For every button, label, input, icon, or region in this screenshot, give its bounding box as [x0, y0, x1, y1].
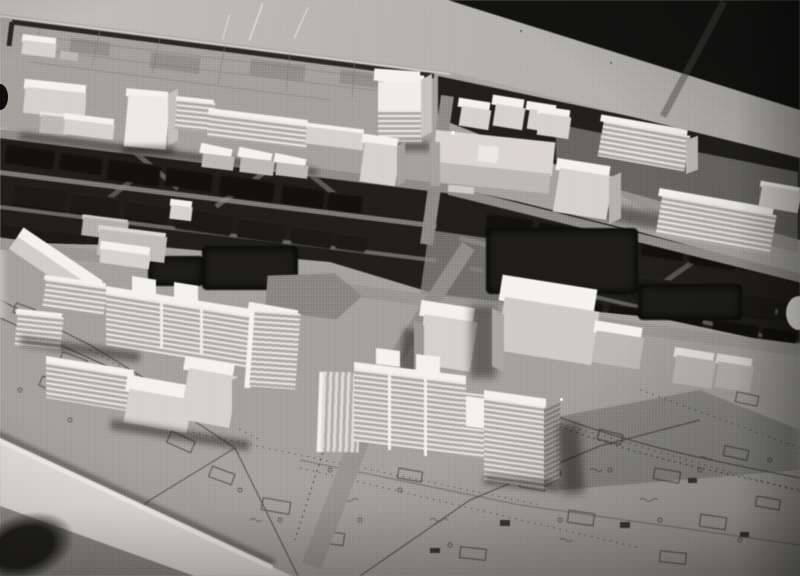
- housing-tower-right-face: [249, 310, 300, 389]
- tower-face: [124, 94, 170, 149]
- centre-housing-right-wing: [466, 396, 486, 429]
- dust-speck: [451, 131, 455, 135]
- right-box-face: [537, 113, 572, 139]
- hall-building-side: [430, 142, 440, 186]
- slab-building-side: [86, 81, 96, 114]
- housing-tower-top: [132, 276, 156, 300]
- fg-cube-face: [672, 355, 716, 389]
- housing-box3-side: [232, 375, 242, 432]
- table-speck: [610, 62, 612, 64]
- centre-housing-tower-top: [416, 354, 440, 373]
- right-ribbed-slab-end: [686, 136, 698, 174]
- dark-block-mass: [638, 284, 742, 320]
- housing-seam: [160, 300, 163, 348]
- small-cube-face: [169, 205, 193, 222]
- housing-tower-top: [174, 282, 198, 306]
- centre-housing-right-side: [544, 401, 560, 488]
- right-tower-face: [553, 168, 613, 220]
- model-tree-block: [237, 217, 285, 243]
- centre-box-face: [492, 104, 525, 130]
- hall-building-rooftop-block: [477, 145, 499, 163]
- centre-housing-seam: [424, 378, 427, 456]
- fg-cube-face: [714, 361, 754, 392]
- street-box-side: [397, 142, 405, 186]
- centre-housing-tower-top: [376, 348, 400, 367]
- right-tower-side: [609, 172, 621, 224]
- architectural-model-photograph: [0, 0, 800, 576]
- housing-box3-face: [180, 368, 238, 428]
- model-tree-block: [327, 192, 363, 213]
- central-tower-face-upper: [378, 82, 422, 110]
- central-tower-side: [421, 74, 432, 138]
- housing-seam: [200, 306, 203, 354]
- model-tree-block: [5, 144, 55, 169]
- photo-content: [0, 0, 800, 576]
- dust-speck: [560, 398, 563, 401]
- model-tree-block: [59, 152, 103, 174]
- model-tree-block: [107, 158, 161, 185]
- street-box-face: [359, 142, 400, 187]
- big-box-side: [492, 308, 504, 372]
- table-speck: [520, 30, 522, 32]
- tower-base-shadow: [122, 146, 174, 154]
- centre-housing-main-face: [354, 369, 466, 455]
- model-tree-block: [281, 184, 325, 208]
- centre-housing-seam: [388, 372, 391, 450]
